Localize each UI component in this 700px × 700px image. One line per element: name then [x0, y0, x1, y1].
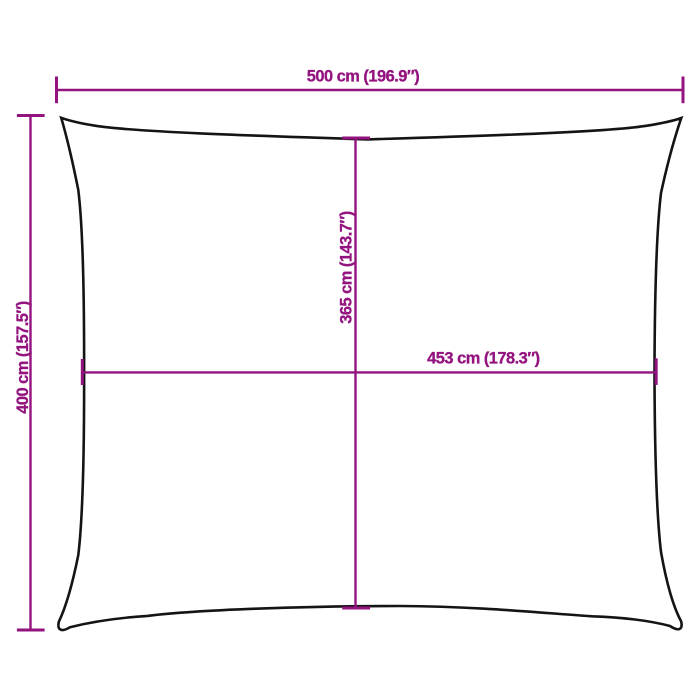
svg-text:500 cm (196.9″): 500 cm (196.9″): [307, 68, 419, 86]
svg-text:400 cm (157.5″): 400 cm (157.5″): [14, 301, 32, 413]
svg-text:453 cm (178.3″): 453 cm (178.3″): [427, 350, 539, 368]
svg-text:365 cm (143.7″): 365 cm (143.7″): [337, 211, 355, 323]
